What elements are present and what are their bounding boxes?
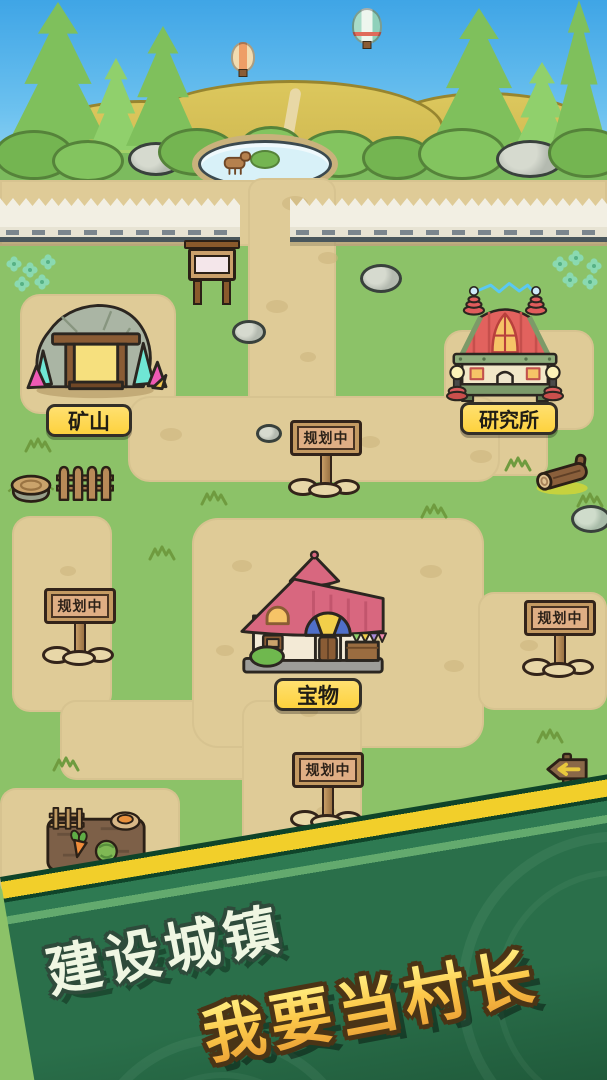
dirt-spot	[60, 566, 76, 576]
research-label: 研究所	[460, 402, 558, 435]
treasure-shop	[238, 550, 388, 676]
grass-tuft	[52, 756, 80, 772]
treasure-label: 宝物	[274, 678, 362, 711]
mine-label: 矿山	[46, 404, 132, 437]
dirt-spot	[300, 352, 316, 362]
rock	[256, 424, 282, 443]
planning-sign[interactable]: 规划中	[280, 420, 372, 496]
planning-sign[interactable]: 规划中	[514, 600, 606, 676]
planning-sign-text: 规划中	[51, 594, 109, 618]
mini-fence	[56, 462, 114, 504]
planning-sign[interactable]: 规划中	[34, 588, 126, 664]
building-treasure[interactable]: 宝物	[238, 550, 388, 712]
planning-sign-text: 规划中	[299, 758, 357, 782]
grass-tuft	[24, 437, 52, 453]
rock	[571, 505, 607, 533]
dirt-spot	[318, 252, 338, 264]
game-screen: 矿山	[0, 0, 607, 1080]
rock	[360, 264, 402, 293]
bush	[52, 140, 124, 182]
hot-air-balloon	[352, 8, 382, 44]
dirt-spot	[420, 565, 442, 578]
sign-rocks	[34, 644, 126, 664]
grass-tuft	[420, 503, 448, 519]
dirt-spot	[470, 450, 492, 463]
sign-rocks	[280, 476, 372, 496]
animal	[220, 150, 254, 177]
planning-sign-text: 规划中	[297, 426, 355, 450]
grass-tuft	[504, 456, 532, 472]
dirt-spot	[444, 660, 464, 672]
pond-bush	[250, 150, 280, 169]
dirt-spot	[266, 300, 288, 313]
notice-board	[184, 236, 240, 306]
tree-stump	[6, 468, 56, 506]
mine-cave	[22, 296, 170, 400]
log	[532, 448, 598, 498]
grass-tuft	[148, 545, 176, 561]
hot-air-balloon	[231, 42, 255, 72]
research-building	[442, 280, 568, 402]
dirt-spot	[216, 645, 234, 656]
picket-fence	[290, 198, 607, 246]
clover-patch	[4, 254, 60, 294]
sign-rocks	[514, 656, 606, 676]
building-mine[interactable]: 矿山	[22, 296, 170, 438]
rock	[232, 320, 266, 344]
grass-tuft	[536, 728, 564, 744]
grass-tuft	[200, 490, 228, 506]
building-research[interactable]: 研究所	[434, 280, 584, 438]
bush	[418, 128, 506, 180]
planning-sign-text: 规划中	[531, 606, 589, 630]
